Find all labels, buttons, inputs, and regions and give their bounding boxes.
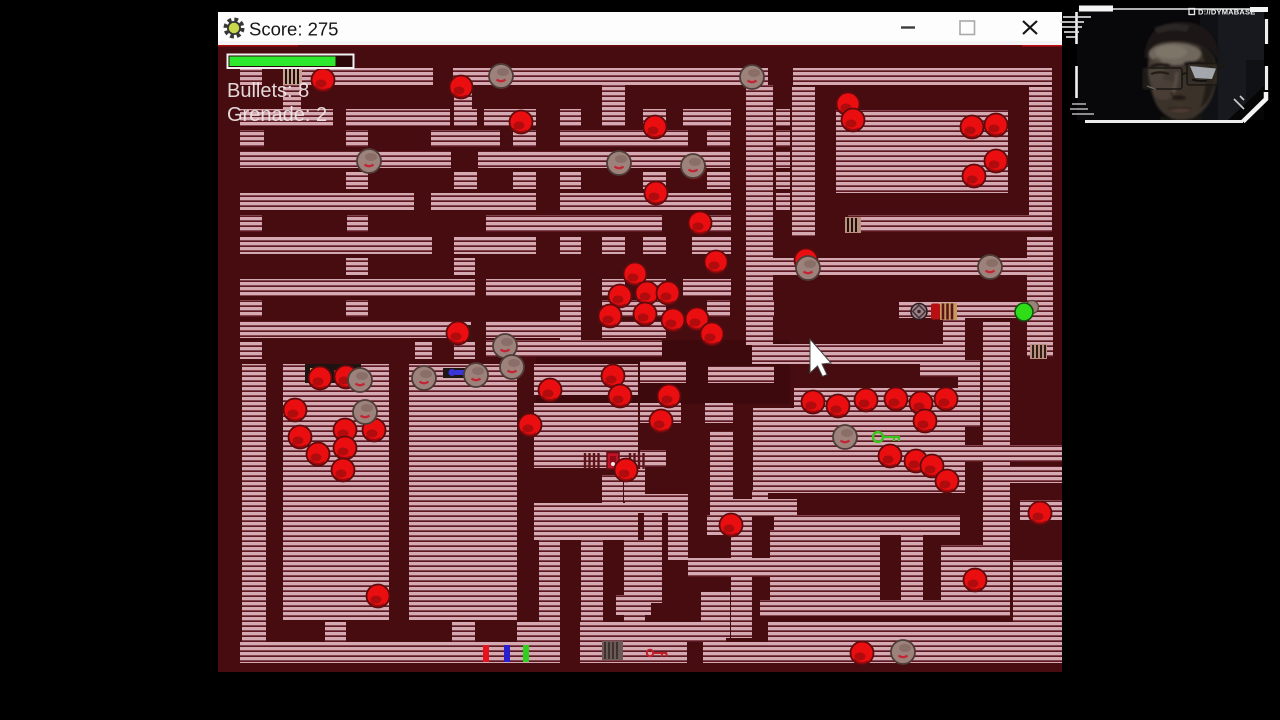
svg-text:D://DYMABASE: D://DYMABASE xyxy=(1198,8,1255,17)
svg-text:Bullets: 8: Bullets: 8 xyxy=(227,80,309,102)
svg-text:Grenade: 2: Grenade: 2 xyxy=(227,104,327,126)
svg-text:Score: 275: Score: 275 xyxy=(249,19,338,40)
